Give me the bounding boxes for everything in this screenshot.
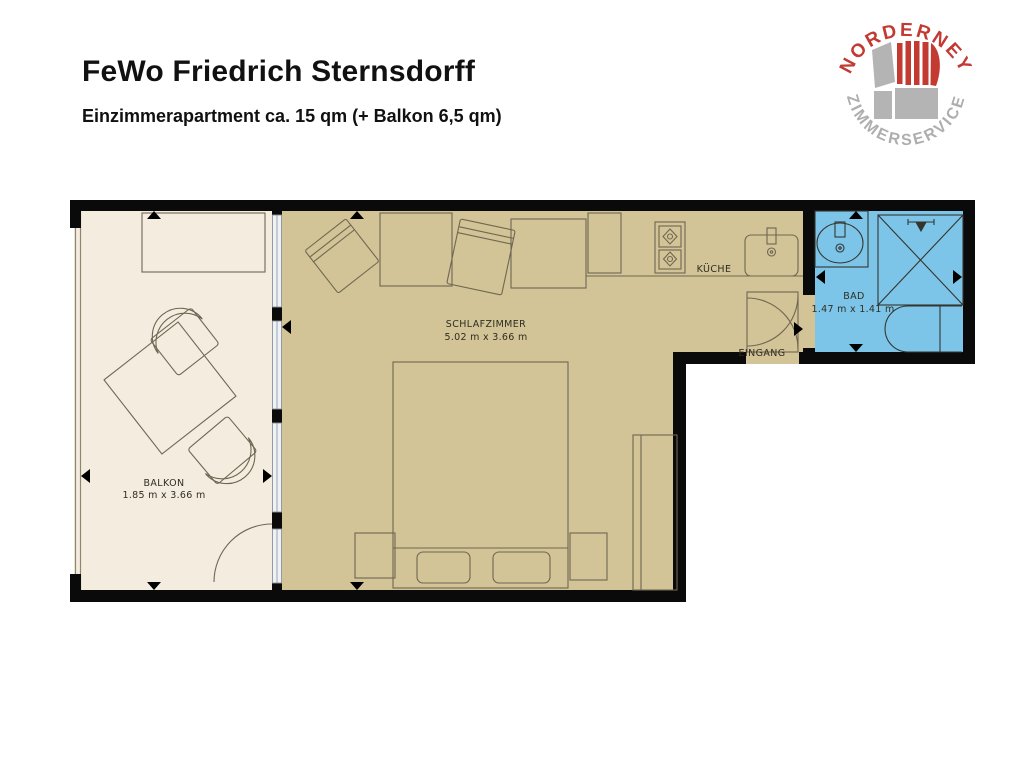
wall-post-3	[272, 409, 282, 423]
bad-label: BAD	[843, 291, 865, 302]
balkon-label: BALKON	[143, 478, 184, 489]
floorplan: BALKON 1.85 m x 3.66 m SCHLAFZIMMER 5.02…	[0, 0, 1024, 768]
wall-post-4	[272, 512, 282, 529]
schlafzimmer-dimensions: 5.02 m x 3.66 m	[444, 332, 527, 343]
wall-post-1	[272, 200, 282, 215]
wall-left-stub-top	[70, 200, 81, 228]
wall-extension-bottom-right	[799, 352, 975, 364]
bad-dimensions: 1.47 m x 1.41 m	[811, 304, 894, 315]
balkon-floor	[74, 211, 272, 590]
balkon-dimensions: 1.85 m x 3.66 m	[122, 490, 205, 501]
wall-main-right	[673, 352, 686, 602]
wall-post-2	[272, 307, 282, 321]
floors	[74, 211, 963, 590]
kueche-label: KÜCHE	[697, 264, 732, 275]
wall-main-bottom	[70, 590, 686, 602]
wall-post-5	[272, 583, 282, 602]
wall-top	[70, 200, 975, 211]
stove-icon	[655, 222, 685, 273]
wall-left-stub-bottom	[70, 574, 81, 602]
schlafzimmer-label: SCHLAFZIMMER	[446, 319, 526, 330]
wall-bad-lower	[803, 348, 815, 364]
wall-right	[963, 200, 975, 364]
wall-bad-upper	[803, 200, 815, 295]
eingang-label: EINGANG	[738, 348, 785, 359]
bad-door-opening	[803, 295, 815, 348]
